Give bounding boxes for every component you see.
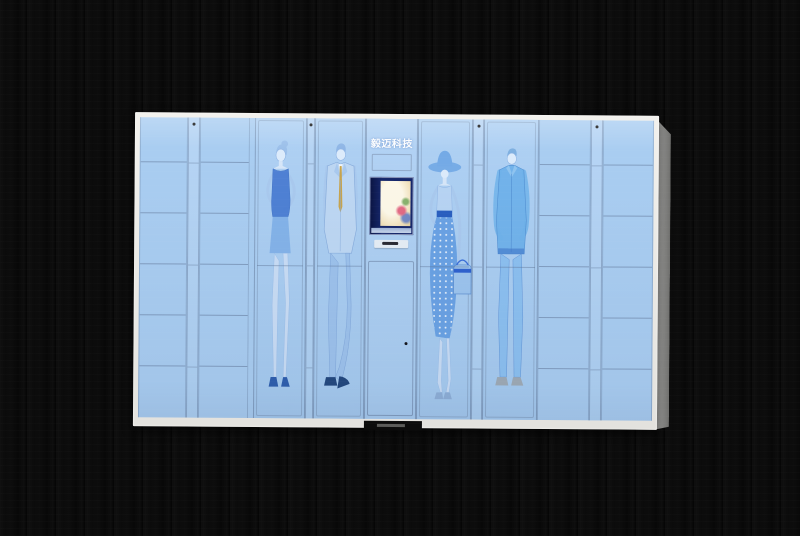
locker-cell[interactable] [538,369,588,420]
locker-door-woman-dress[interactable] [253,118,307,418]
locker-cell[interactable] [602,369,651,420]
locker-cell[interactable] [199,316,247,367]
screw-dot [310,123,313,126]
locker-door-man-casual[interactable] [482,120,539,420]
locker-cell[interactable] [540,120,590,165]
card-slot[interactable] [374,240,408,248]
base-notch [364,421,422,430]
screen-display[interactable] [380,181,410,226]
locker-cell[interactable] [140,213,186,264]
console-panel [372,154,412,171]
locker-cell[interactable] [200,214,248,265]
locker-cell[interactable] [200,265,248,316]
locker-cell[interactable] [201,118,249,163]
divider-strip [589,120,603,420]
locker-cell[interactable] [140,264,186,315]
locker-cell[interactable] [200,163,248,214]
console-column: 毅迈科技 [364,119,418,419]
figure-man-casual-art [481,144,539,424]
locker-cell[interactable] [199,367,247,418]
screw-dot [193,123,196,126]
screw-dot [596,125,599,128]
locker-door-woman-hat[interactable] [416,119,473,419]
slot-opening [382,242,398,245]
locker-cell[interactable] [538,318,588,369]
small-locker-column [537,120,591,420]
locker-cell[interactable] [539,165,589,216]
locker-cell[interactable] [539,216,589,267]
locker-cell[interactable] [603,165,652,216]
small-locker-column [198,118,250,418]
wood-background: 毅迈科技 [0,0,800,536]
locker-cell[interactable] [602,318,651,369]
cabinet-front: 毅迈科技 [138,117,654,421]
small-locker-column [138,117,188,417]
screw-dot [477,125,480,128]
locker-cell[interactable] [603,216,652,267]
locker-cell[interactable] [139,315,185,366]
locker-door-man-suit[interactable] [313,118,366,418]
locker-cell[interactable] [141,117,187,162]
console-door[interactable] [367,261,414,416]
figure-woman-dress-art [249,134,311,422]
locker-cell[interactable] [603,267,652,318]
locker-cell[interactable] [604,120,653,165]
screen-ledge [371,228,411,233]
locker-cell[interactable] [139,366,185,417]
divider-strip [186,118,200,418]
locker-cabinet: 毅迈科技 [133,112,659,430]
brand-label: 毅迈科技 [371,135,413,150]
base-notch-bar [377,424,405,427]
console-screen[interactable] [369,177,413,235]
small-locker-column [601,120,654,420]
figure-man-suit-art [310,138,368,422]
locker-cell[interactable] [140,162,186,213]
lock-dot [404,342,407,345]
locker-cell[interactable] [539,267,589,318]
figure-woman-hat-art [411,133,477,423]
